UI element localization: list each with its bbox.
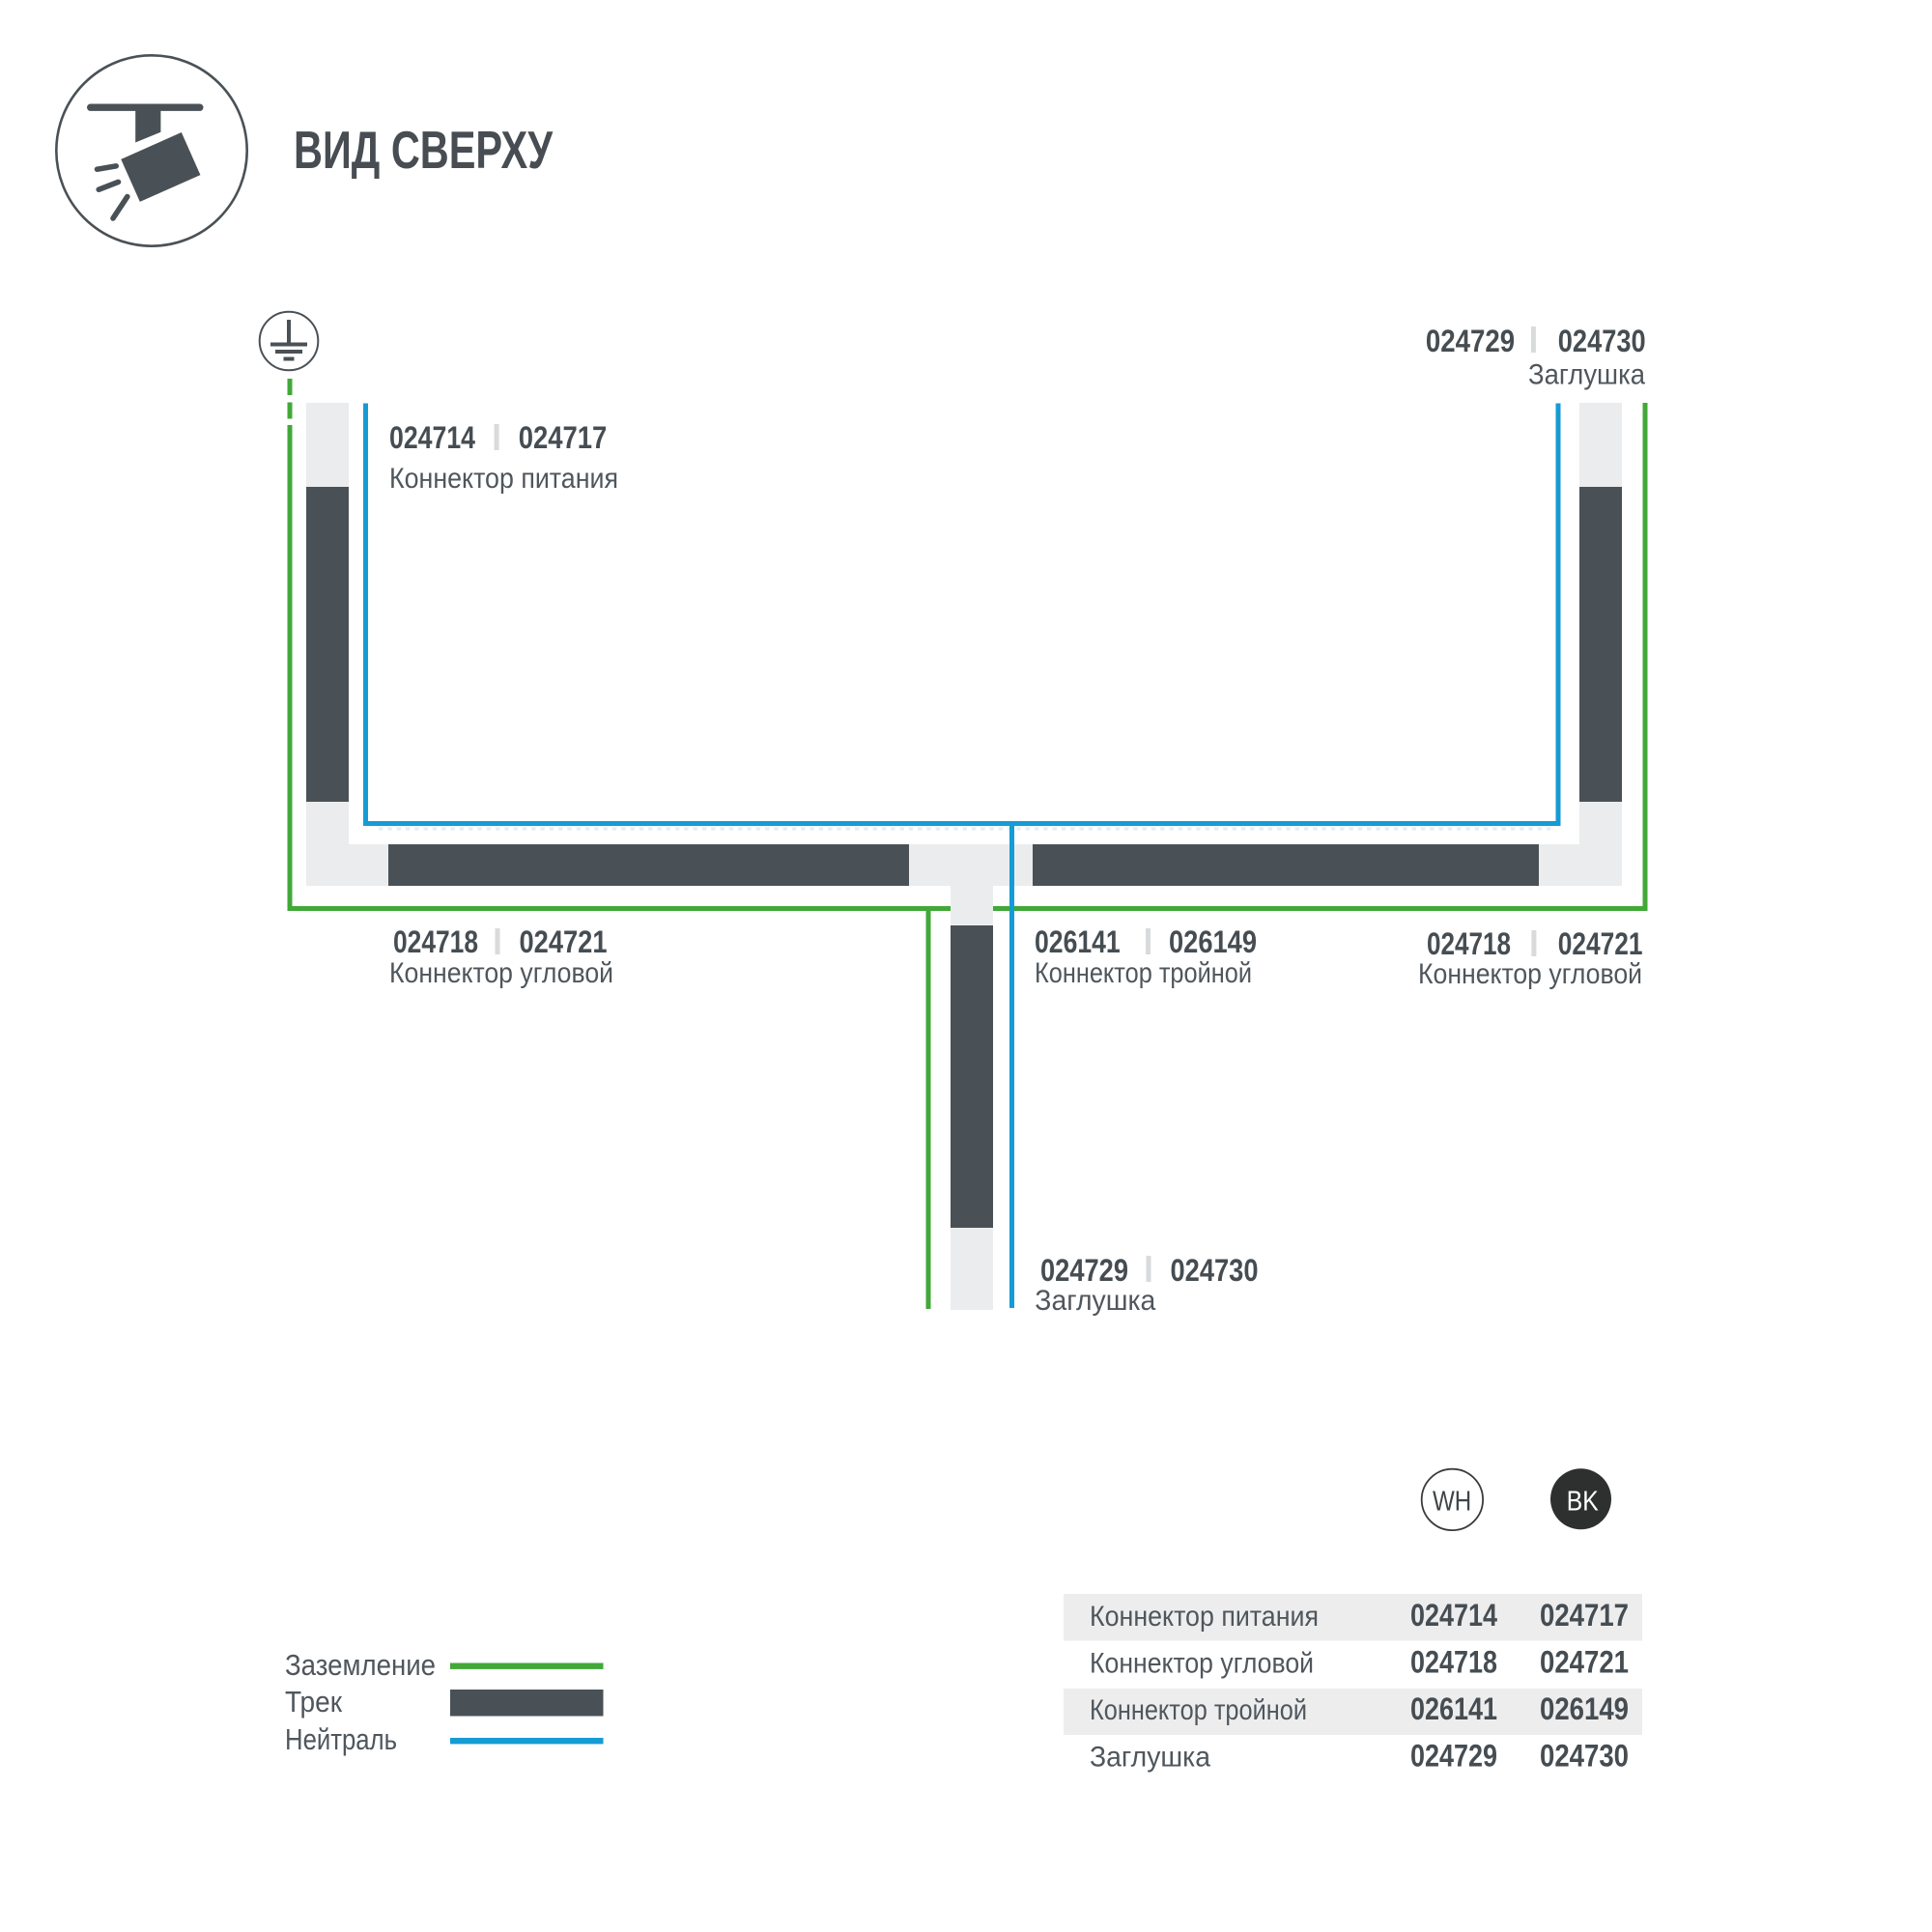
svg-text:WH: WH <box>1433 1486 1471 1517</box>
svg-text:Коннектор тройной: Коннектор тройной <box>1090 1694 1307 1726</box>
svg-text:024730: 024730 <box>1558 324 1646 358</box>
svg-text:Коннектор угловой: Коннектор угловой <box>389 957 613 989</box>
svg-text:024718: 024718 <box>393 924 478 959</box>
svg-text:Коннектор питания: Коннектор питания <box>1090 1601 1319 1633</box>
svg-text:026141: 026141 <box>1410 1691 1497 1726</box>
svg-text:BK: BK <box>1567 1486 1600 1517</box>
svg-text:024729: 024729 <box>1426 324 1515 358</box>
svg-text:024714: 024714 <box>1410 1598 1497 1633</box>
svg-text:Заглушка: Заглушка <box>1090 1742 1210 1774</box>
svg-text:Заглушка: Заглушка <box>1035 1285 1155 1317</box>
svg-text:Коннектор тройной: Коннектор тройной <box>1035 957 1252 989</box>
svg-text:Коннектор угловой: Коннектор угловой <box>1090 1648 1314 1680</box>
svg-text:Коннектор питания: Коннектор питания <box>389 463 618 495</box>
svg-text:024729: 024729 <box>1040 1253 1128 1288</box>
svg-text:024718: 024718 <box>1410 1645 1497 1680</box>
svg-text:024721: 024721 <box>520 924 608 959</box>
svg-text:024730: 024730 <box>1540 1739 1629 1774</box>
svg-text:Коннектор угловой: Коннектор угловой <box>1418 958 1642 990</box>
svg-text:024718: 024718 <box>1427 926 1511 961</box>
svg-text:Трек: Трек <box>285 1685 342 1719</box>
svg-text:Заглушка: Заглушка <box>1528 359 1645 391</box>
svg-text:024717: 024717 <box>1540 1598 1629 1633</box>
svg-text:026149: 026149 <box>1169 924 1257 959</box>
svg-text:Заземление: Заземление <box>285 1648 436 1682</box>
svg-text:Нейтраль: Нейтраль <box>285 1722 397 1756</box>
svg-text:ВИД СВЕРХУ: ВИД СВЕРХУ <box>294 120 554 180</box>
svg-text:026149: 026149 <box>1540 1691 1629 1726</box>
svg-text:024729: 024729 <box>1410 1739 1497 1774</box>
svg-text:026141: 026141 <box>1035 924 1121 959</box>
svg-text:024714: 024714 <box>389 420 475 455</box>
svg-text:024721: 024721 <box>1540 1645 1629 1680</box>
svg-text:024730: 024730 <box>1171 1253 1259 1288</box>
svg-text:024721: 024721 <box>1558 926 1643 961</box>
svg-text:024717: 024717 <box>519 420 608 455</box>
